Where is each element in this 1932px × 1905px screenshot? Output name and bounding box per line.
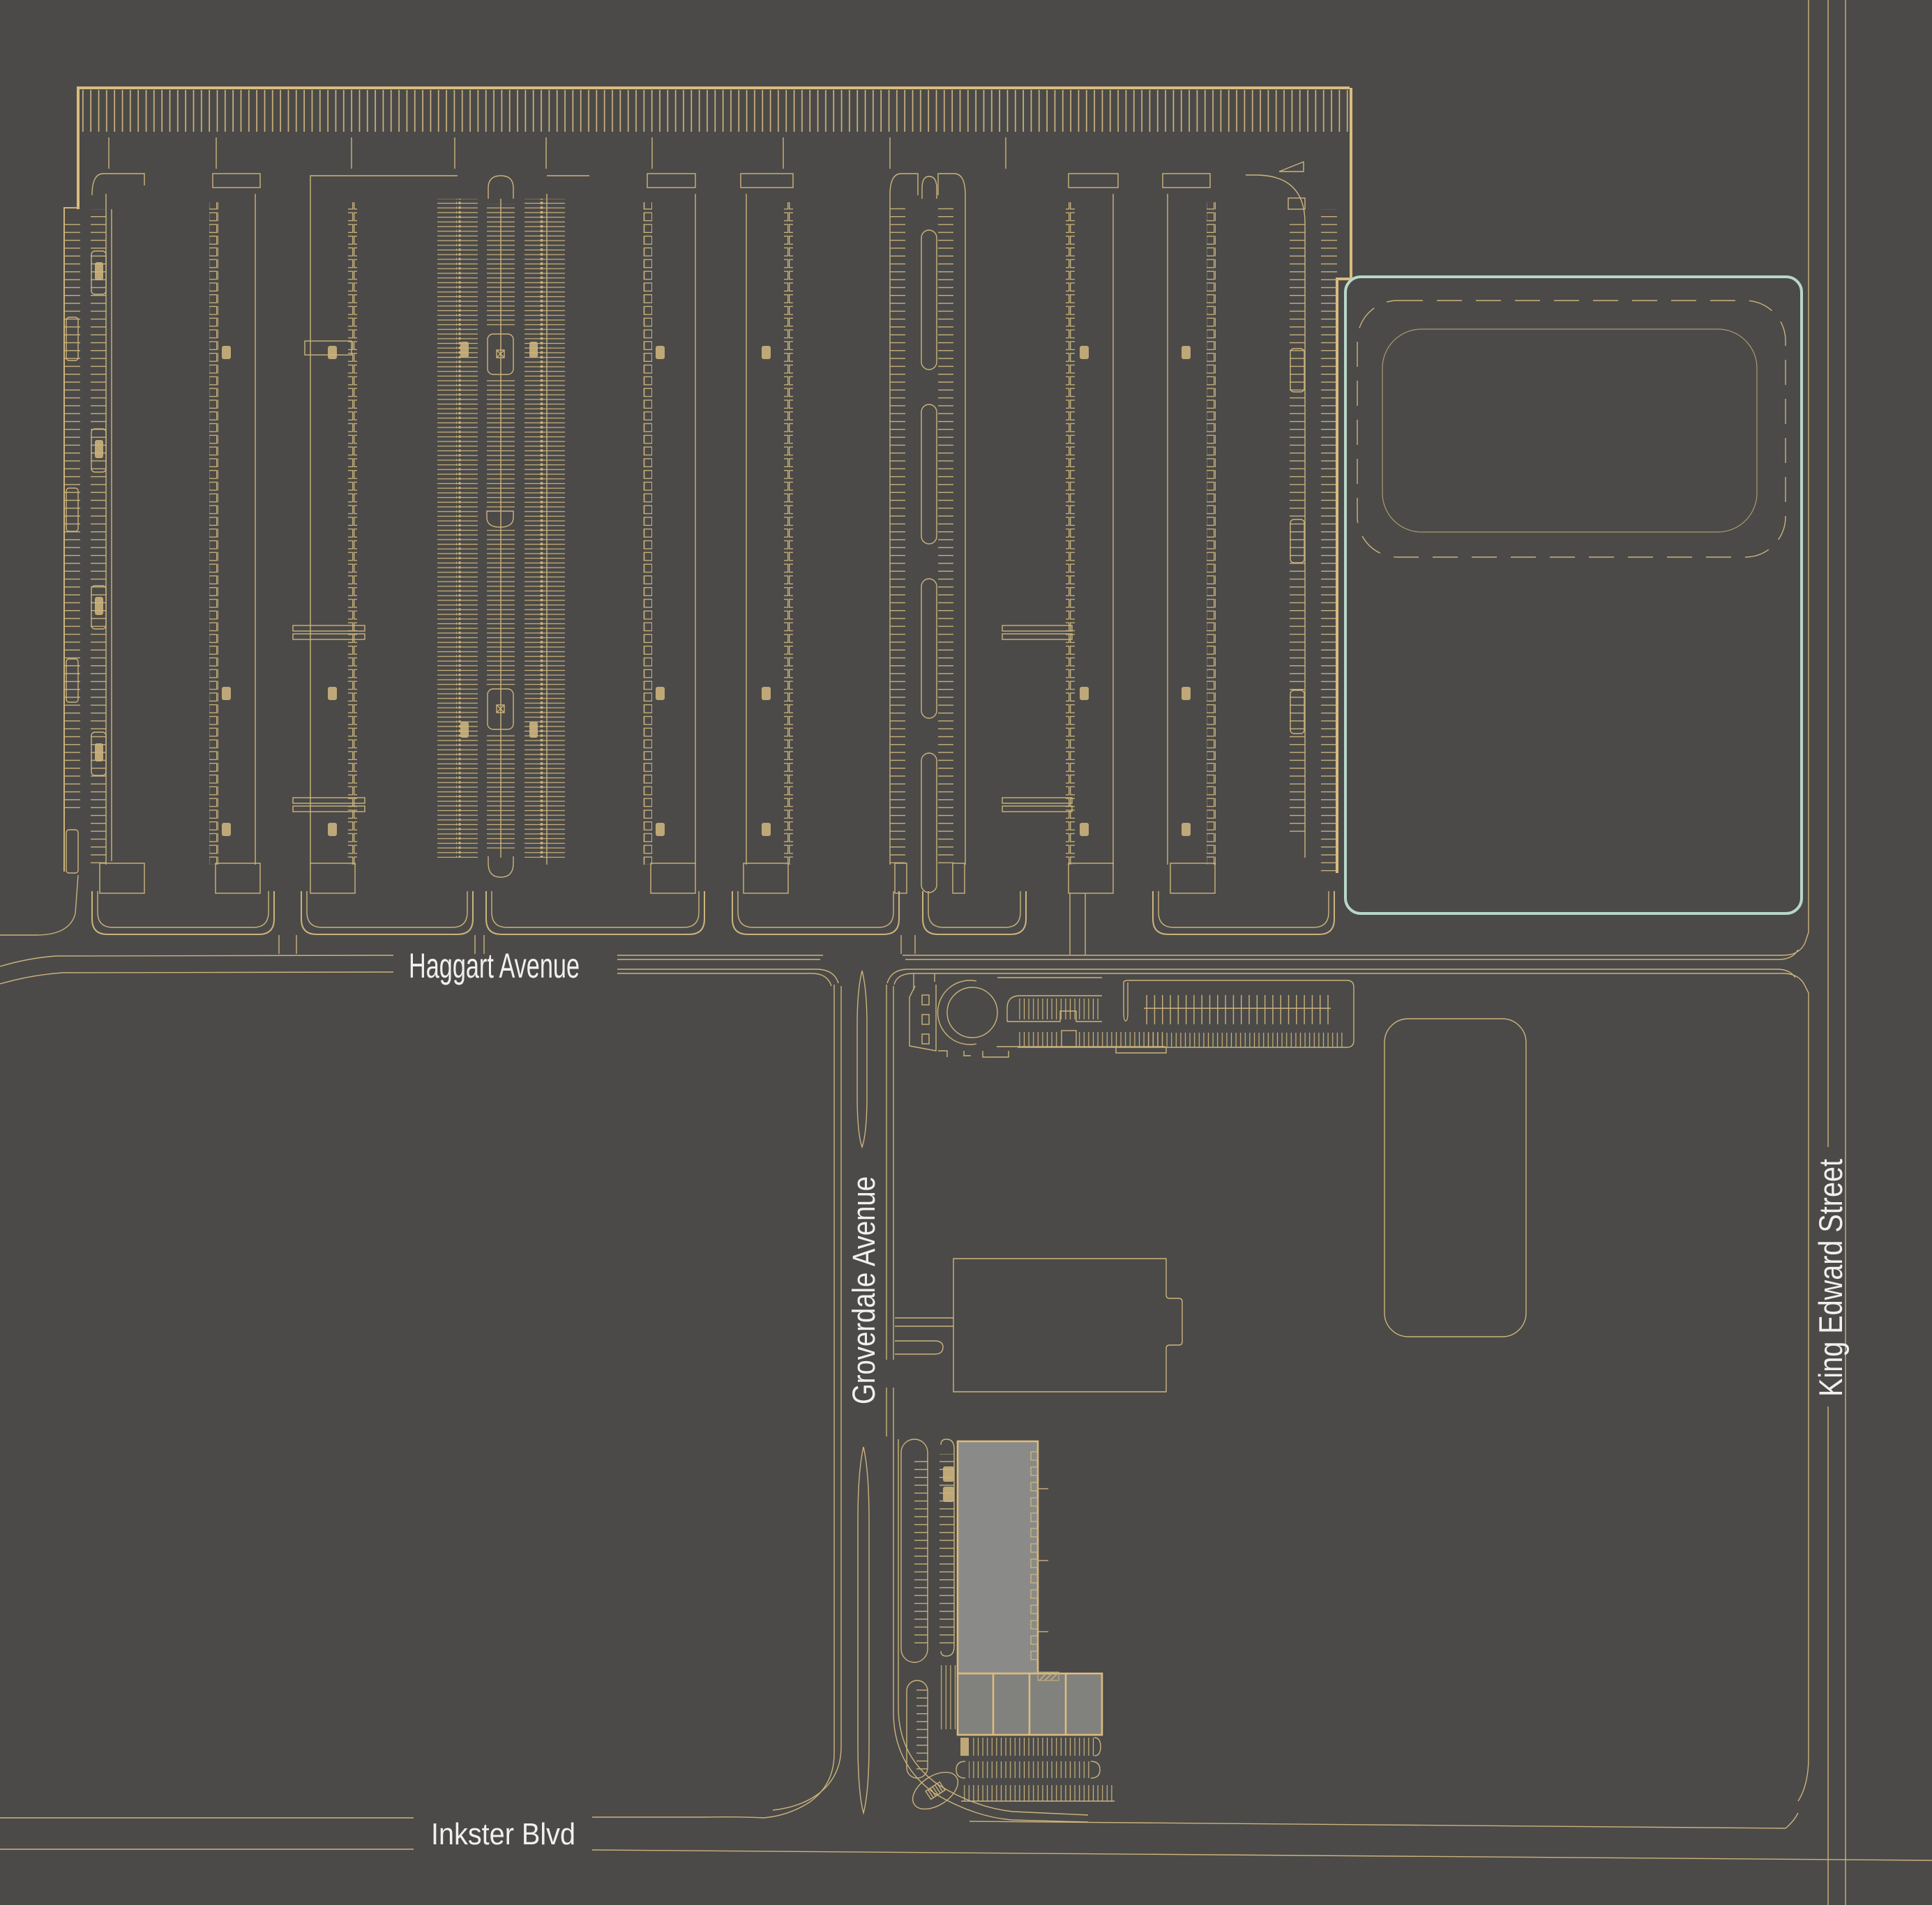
svg-text:Haggart Avenue: Haggart Avenue: [409, 946, 580, 985]
svg-text:Inkster Blvd: Inkster Blvd: [431, 1817, 575, 1851]
svg-text:King Edward Street: King Edward Street: [1812, 1159, 1849, 1397]
svg-text:Groverdale Avenue: Groverdale Avenue: [846, 1176, 882, 1404]
